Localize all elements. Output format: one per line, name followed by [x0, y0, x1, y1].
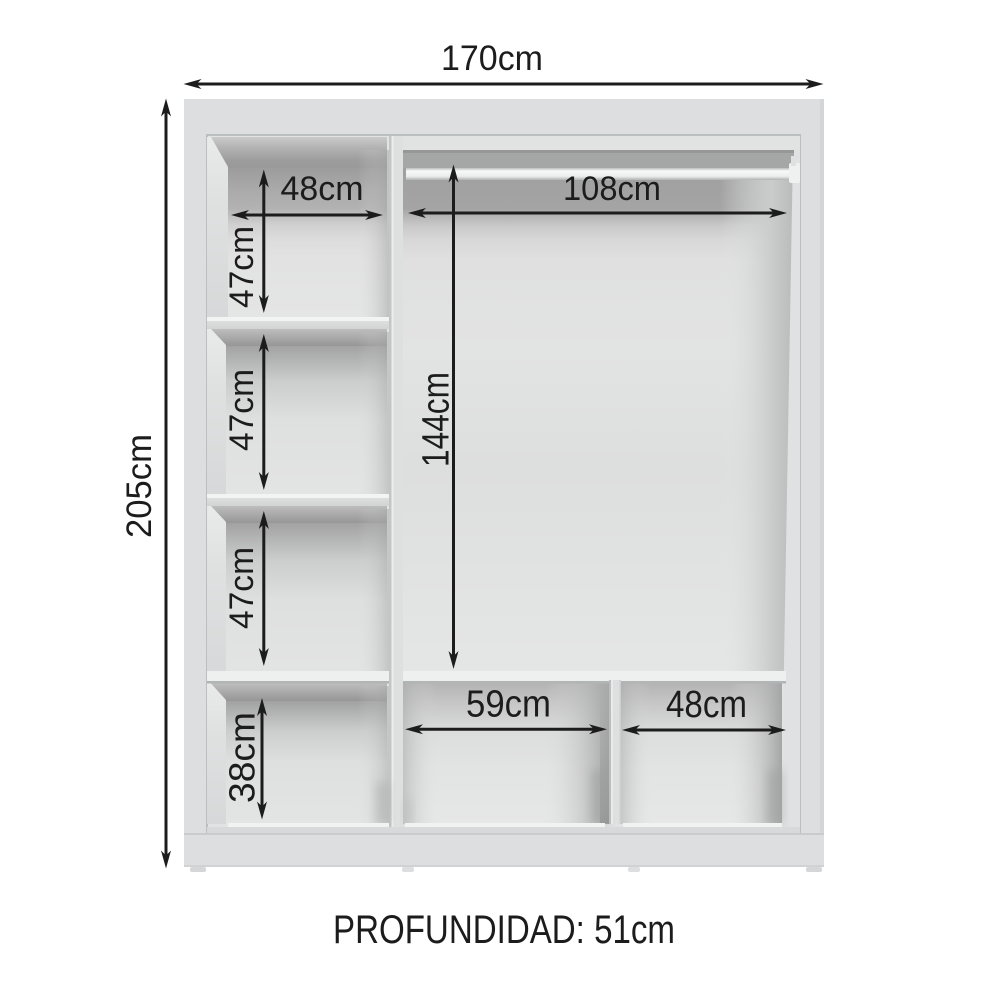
svg-text:38cm: 38cm: [222, 712, 263, 803]
svg-text:47cm: 47cm: [223, 369, 261, 451]
svg-text:47cm: 47cm: [223, 226, 261, 308]
svg-text:48cm: 48cm: [281, 170, 364, 208]
svg-text:PROFUNDIDAD: 51cm: PROFUNDIDAD: 51cm: [333, 908, 675, 952]
svg-text:47cm: 47cm: [223, 547, 261, 629]
svg-text:170cm: 170cm: [441, 39, 543, 78]
svg-text:144cm: 144cm: [416, 372, 458, 467]
svg-text:59cm: 59cm: [466, 684, 551, 726]
svg-text:205cm: 205cm: [120, 434, 159, 538]
svg-text:108cm: 108cm: [563, 170, 661, 208]
svg-text:48cm: 48cm: [666, 684, 747, 726]
